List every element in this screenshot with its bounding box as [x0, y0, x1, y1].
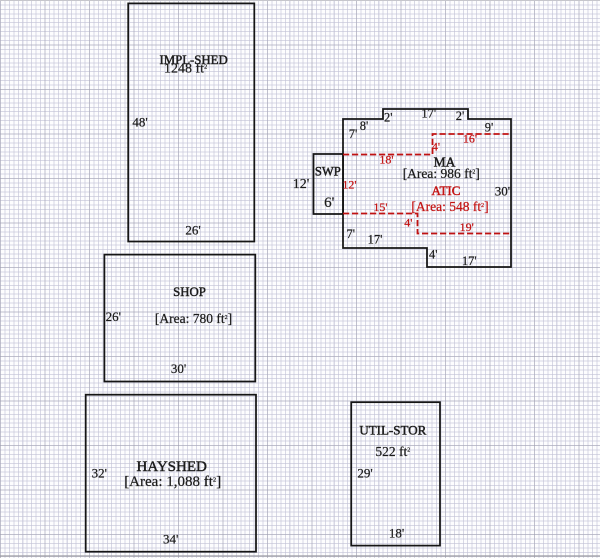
- svg-text:1248 ft2: 1248 ft2: [164, 62, 207, 77]
- svg-text:32': 32': [92, 465, 107, 480]
- svg-text:16': 16': [463, 132, 477, 146]
- svg-text:6': 6': [324, 195, 335, 211]
- svg-text:2': 2': [384, 110, 393, 124]
- svg-text:18': 18': [389, 526, 404, 541]
- svg-text:2': 2': [456, 109, 465, 123]
- svg-text:SWP: SWP: [315, 164, 341, 178]
- svg-text:[Area: 1,088 ft2]: [Area: 1,088 ft2]: [124, 474, 221, 490]
- svg-text:4': 4': [432, 140, 440, 154]
- svg-text:7': 7': [349, 127, 358, 141]
- svg-text:[Area: 548 ft2]: [Area: 548 ft2]: [411, 199, 488, 214]
- svg-text:4': 4': [429, 248, 438, 262]
- svg-text:4': 4': [404, 216, 412, 230]
- svg-text:9': 9': [485, 121, 494, 135]
- svg-text:SHOP: SHOP: [173, 285, 206, 299]
- svg-text:7': 7': [346, 227, 355, 241]
- svg-text:30': 30': [495, 183, 510, 198]
- svg-text:17': 17': [421, 107, 436, 121]
- svg-text:17': 17': [368, 233, 383, 247]
- svg-text:26': 26': [185, 223, 200, 238]
- svg-text:34': 34': [163, 531, 178, 546]
- svg-text:30': 30': [171, 361, 186, 376]
- svg-text:HAYSHED: HAYSHED: [137, 459, 207, 475]
- svg-text:18': 18': [379, 152, 393, 166]
- svg-text:48': 48': [132, 114, 147, 129]
- svg-text:UTIL-STOR: UTIL-STOR: [359, 422, 426, 437]
- svg-text:ATIC: ATIC: [432, 183, 461, 198]
- svg-text:17': 17': [462, 254, 477, 268]
- svg-text:8': 8': [360, 119, 369, 133]
- svg-text:12': 12': [293, 177, 310, 192]
- svg-text:15': 15': [373, 200, 387, 214]
- svg-text:[Area: 986 ft2]: [Area: 986 ft2]: [403, 166, 480, 181]
- svg-text:12': 12': [342, 178, 356, 192]
- svg-text:522 ft2: 522 ft2: [375, 444, 410, 459]
- svg-text:19': 19': [460, 220, 474, 234]
- svg-text:[Area: 780 ft2]: [Area: 780 ft2]: [155, 311, 232, 326]
- svg-text:29': 29': [357, 466, 372, 481]
- svg-text:26': 26': [106, 309, 121, 324]
